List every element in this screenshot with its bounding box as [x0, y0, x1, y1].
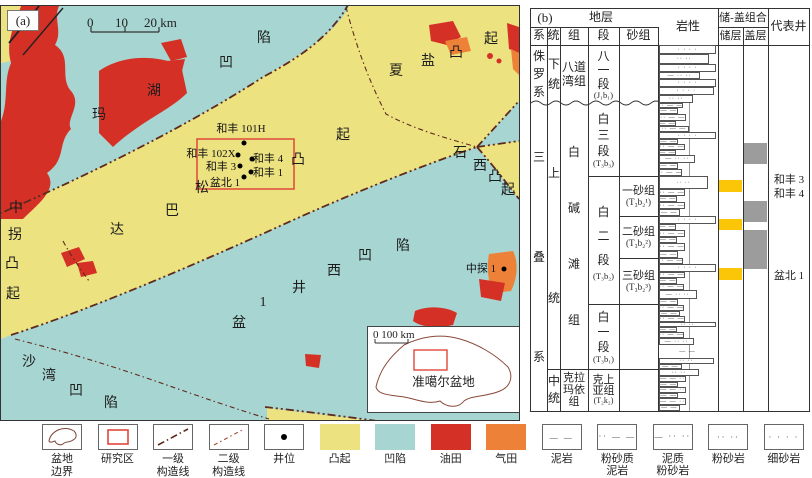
reservoir-block: [719, 268, 742, 280]
legend-item: 盆地边界: [42, 424, 82, 478]
cell-lower-series: 下统: [547, 54, 561, 94]
legend-item: 凸起: [320, 424, 360, 478]
map-region-label: 夏: [389, 60, 403, 80]
legend-label: 井位: [273, 453, 295, 466]
legend-item: 气田: [486, 424, 526, 478]
legend-swatch-一级构造线: [153, 424, 193, 450]
map-region-label: 西: [327, 260, 341, 280]
legend-swatch-凹陷: [375, 424, 415, 450]
cell-b3-code: (T₃b₃): [593, 159, 614, 168]
map-region-label: 湾: [42, 365, 56, 385]
legend-label: 凹陷: [384, 453, 406, 466]
map-region-label: 达: [110, 219, 124, 239]
panel-b-label: (b): [533, 11, 557, 25]
inset-scalebar-text: 0 100 km: [373, 329, 415, 341]
cell-jurassic-system: 侏罗系: [532, 47, 546, 101]
legend-label: 油田: [440, 453, 462, 466]
legend-label: 细砂岩: [767, 453, 800, 466]
well-dot: [238, 164, 243, 169]
well-dot: [249, 170, 254, 175]
legend-item: ·· ··粉砂岩: [708, 424, 748, 478]
map-region-label: 凸: [449, 42, 463, 62]
legend-item: ·· — —粉砂质泥岩: [597, 424, 637, 478]
lith-bed: — —: [659, 209, 680, 216]
inset-basin-name: 准噶尔盆地: [412, 371, 475, 390]
legend-swatch-细砂岩: · · · ·: [764, 424, 804, 450]
lith-bed: — ·· ··: [659, 155, 695, 163]
cell-sand2: 二砂组: [622, 226, 655, 239]
header-system: 系: [531, 27, 547, 45]
header-series: 统: [547, 27, 560, 45]
map-region-label: 中: [9, 197, 23, 217]
lith-bed: · · · ·: [659, 79, 716, 87]
cap-block: [744, 143, 767, 164]
geologic-map-panel: (a) 0 10 20 km 玛湖凹陷夏盐凸起达巴松凸起中拐凸起沙湾凹陷盆1井西…: [0, 5, 520, 421]
cell-sand3-code: (T₃b₂³): [626, 283, 651, 292]
legend-label: 泥岩: [551, 453, 573, 466]
well-dot: [236, 153, 241, 158]
legend-swatch-油田: [431, 424, 471, 450]
legend-item: 二级构造线: [209, 424, 249, 478]
cell-j1b1-code: (J₁b₁): [594, 91, 613, 100]
header-rep-wells: 代表井: [768, 9, 809, 45]
unconformity-wavy-line: [531, 99, 663, 107]
scalebar-20km: 20 km: [144, 15, 177, 31]
cell-karamay-fm: 克拉玛依组: [561, 372, 587, 408]
lith-bed: ·· — —: [659, 230, 685, 237]
figure-root: (a) 0 10 20 km 玛湖凹陷夏盐凸起达巴松凸起中拐凸起沙湾凹陷盆1井西…: [0, 0, 812, 478]
lith-bed: · · · ·: [659, 45, 716, 54]
legend-row: 盆地边界研究区一级构造线二级构造线井位凸起凹陷油田气田— —泥岩·· — —粉砂…: [0, 424, 812, 478]
legend-swatch-凸起: [320, 424, 360, 450]
legend-label: 粉砂质泥岩: [601, 453, 634, 478]
map-region-label: 巴: [165, 200, 179, 220]
well-label: 和丰 101H: [216, 120, 265, 136]
header-formation: 组: [560, 27, 588, 45]
cell-sand1: 一砂组: [622, 185, 655, 198]
reservoir-block: [719, 219, 742, 230]
well-dot: [242, 175, 247, 180]
lith-bed: · · · ·: [659, 216, 716, 224]
inset-study-rect: [414, 350, 447, 370]
cap-block: [744, 201, 767, 222]
legend-item: — —泥岩: [542, 424, 582, 478]
header-member: 段: [588, 27, 619, 45]
cell-sand1-code: (T₃b₂¹): [626, 198, 651, 207]
legend-swatch-粉砂岩: ·· ··: [708, 424, 748, 450]
header-lithology: 岩性: [658, 9, 718, 45]
cell-triassic-system: 三叠系: [532, 107, 546, 407]
map-region-label: 盆: [232, 312, 246, 332]
lith-bed: · · · ·: [659, 87, 714, 95]
header-reservoir-cap: 储-盖组合: [718, 9, 768, 27]
map-region-label: 陷: [104, 392, 118, 412]
map-region-label: 起: [336, 124, 350, 144]
legend-swatch-气田: [486, 424, 526, 450]
rep-well-label: 和丰 4: [770, 185, 808, 201]
lith-bed: · · · ·: [659, 64, 716, 72]
map-region-label: 陷: [257, 27, 271, 47]
legend-swatch-泥质粉砂岩: — ·· ··: [653, 424, 693, 450]
legend-swatch-泥岩: — —: [542, 424, 582, 450]
lith-bed: ·· — —: [659, 189, 685, 196]
lith-bed: — —: [659, 251, 678, 258]
map-region-label: 西: [473, 155, 487, 175]
lith-bed: — ·· ··: [659, 72, 700, 79]
lith-bed: · · · ·: [659, 264, 716, 272]
well-label: 和丰 3: [206, 158, 236, 174]
map-region-label: 湖: [147, 80, 161, 100]
legend-item: 凹陷: [375, 424, 415, 478]
header-cap: 盖层: [743, 27, 768, 45]
lith-bed: ·· — —: [659, 114, 686, 121]
panel-a-label: (a): [7, 10, 39, 31]
lith-bed: ·· ··: [659, 54, 709, 64]
legend-item: 井位: [264, 424, 304, 478]
legend-swatch-井位: [264, 424, 304, 450]
cell-k2-code: (T₂k₂): [594, 397, 614, 405]
well-dot: [242, 141, 247, 146]
cell-b3-member: 白三段: [597, 111, 611, 159]
lith-bed: · · · ·: [659, 132, 716, 139]
legend-item: · · · ·细砂岩: [764, 424, 804, 478]
legend-swatch-研究区: [98, 424, 138, 450]
map-region-label: 起: [6, 283, 20, 303]
map-region-label: 起: [484, 28, 498, 48]
cell-baijiantan-fm: 白碱滩组: [567, 124, 581, 348]
legend-label: 粉砂岩: [712, 453, 745, 466]
legend-label: 研究区: [101, 453, 134, 466]
map-region-label: 石: [453, 142, 467, 162]
legend-label: 一级构造线: [157, 453, 190, 478]
legend-swatch-粉砂质泥岩: ·· — —: [597, 424, 637, 450]
rep-well-label: 盆北 1: [770, 267, 808, 283]
map-region-label: 凹: [219, 52, 233, 72]
lith-bed: — ·· ··: [659, 338, 694, 345]
cell-upper-series: 上统: [547, 111, 561, 361]
map-region-label: 玛: [92, 104, 106, 124]
lith-bed: ·· ··: [659, 369, 699, 376]
lith-bed: ·· — —: [659, 202, 685, 209]
inset-locator-map: 0 100 km 准噶尔盆地: [367, 326, 520, 413]
legend-item: 油田: [431, 424, 471, 478]
lith-bed: — ·· ··: [659, 290, 697, 299]
well-dot: [502, 267, 507, 272]
cell-sand2-code: (T₃b₂²): [626, 239, 651, 248]
cell-b2-code: (T₃b₂): [593, 272, 614, 281]
map-region-label: 盐: [421, 50, 435, 70]
cell-b1-member: 白一段: [597, 310, 611, 355]
cell-b2-member: 白二段: [597, 200, 611, 272]
map-region-label: 凸: [5, 253, 19, 273]
lith-bed: — —: [659, 405, 680, 411]
legend-item: — ·· ··泥质粉砂岩: [653, 424, 693, 478]
legend-swatch-盆地边界: [42, 424, 82, 450]
map-region-label: 1: [260, 295, 267, 311]
lith-bed: ·· ··: [659, 176, 708, 189]
strat-column-panel: (b) 地层 系 统 组 段 砂组 岩性 储-盖组合 储层 盖层 代表井 侏罗系…: [530, 8, 810, 412]
legend-label: 泥质粉砂岩: [656, 453, 689, 478]
map-region-label: 井: [292, 277, 306, 297]
lithology-log: · · · ··· ··· · · ·— ·· ··· · · ·· · · ·…: [659, 45, 717, 411]
well-label: 中探 1: [466, 260, 496, 276]
map-region-label: 凸: [291, 149, 305, 169]
map-region-label: 松: [195, 177, 209, 197]
map-region-label: 拐: [8, 224, 22, 244]
scalebar-10: 10: [115, 15, 128, 31]
cell-middle-series: 中统: [547, 373, 561, 407]
lith-bed: — — ··: [659, 398, 686, 405]
cap-block: [744, 230, 767, 269]
legend-label: 气田: [495, 453, 517, 466]
map-region-label: 凸: [488, 166, 502, 186]
legend-label: 盆地边界: [51, 453, 73, 478]
map-region-label: 凹: [358, 245, 372, 265]
scalebar-0: 0: [87, 15, 94, 31]
legend-item: 研究区: [98, 424, 138, 478]
header-reservoir: 储层: [718, 27, 743, 45]
cell-b1-code: (T₃b₁): [593, 355, 614, 364]
cell-sand3: 三砂组: [622, 270, 655, 283]
cell-badaowan-fm: 八道湾组: [561, 60, 587, 88]
header-stratigraphy: 地层: [571, 9, 631, 27]
map-region-label: 陷: [396, 235, 410, 255]
map-region-label: 起: [501, 179, 515, 199]
reservoir-block: [719, 180, 742, 192]
legend-swatch-二级构造线: [209, 424, 249, 450]
lith-bed: — —: [659, 345, 716, 358]
lith-bed: ·· ··: [659, 95, 693, 103]
cell-j1b1-member: 八一段: [597, 49, 611, 91]
legend-item: 一级构造线: [153, 424, 193, 478]
legend-label: 凸起: [329, 453, 351, 466]
well-label: 和丰 1: [253, 164, 283, 180]
lith-bed: ·· — —: [659, 169, 682, 176]
lith-bed: ·· — —: [659, 243, 685, 251]
header-sand-group: 砂组: [619, 27, 658, 45]
well-label: 盆北 1: [210, 174, 240, 190]
legend-label: 二级构造线: [212, 453, 245, 478]
cell-k2-member: 克上亚组: [591, 375, 617, 397]
map-region-label: 沙: [22, 351, 36, 371]
map-region-label: 凹: [69, 380, 83, 400]
well-dot: [250, 157, 255, 162]
